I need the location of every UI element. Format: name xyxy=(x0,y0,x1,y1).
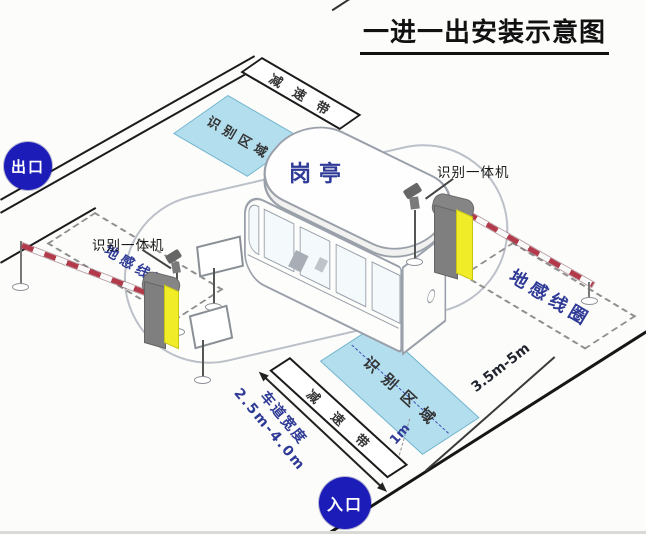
sign-base-lower xyxy=(194,376,211,384)
booth-window xyxy=(372,261,401,324)
diagram-canvas: 减速带 识别区域 地感线圈 地感线圈 识别区域 减速带 岗亭 xyxy=(0,0,646,534)
barrier-machine-right-side xyxy=(456,209,473,281)
entrance-badge: 入口 xyxy=(319,477,371,529)
barrier-machine-right-front xyxy=(434,205,458,280)
booth-window-end xyxy=(248,201,259,255)
camera-bracket-left xyxy=(171,261,181,273)
barrier-machine-left-front xyxy=(144,281,166,349)
sign-pole-lower xyxy=(202,340,204,380)
coil-distance-label: 3.5m-5m xyxy=(468,340,533,395)
barrier-arm-right-support-base xyxy=(581,297,598,305)
booth-window xyxy=(336,244,367,308)
title-tick-line xyxy=(332,0,356,11)
camera-label-right: 识别一体机 xyxy=(437,161,510,181)
ground-coil-entrance-label: 地感线圈 xyxy=(476,238,622,354)
sign-pole-upper xyxy=(213,268,215,308)
camera-pole-right xyxy=(414,210,416,262)
exit-badge: 出口 xyxy=(4,142,52,190)
page-title: 一进一出安装示意图 xyxy=(360,12,609,55)
barrier-machine-left-side xyxy=(164,285,179,350)
camera-label-left: 识别一体机 xyxy=(92,234,165,254)
booth-door-handle xyxy=(427,287,435,306)
booth-label: 岗亭 xyxy=(289,156,349,188)
camera-bracket-right xyxy=(409,196,420,209)
camera-base-right xyxy=(406,258,423,266)
barrier-arm-left-support-base xyxy=(12,283,29,291)
